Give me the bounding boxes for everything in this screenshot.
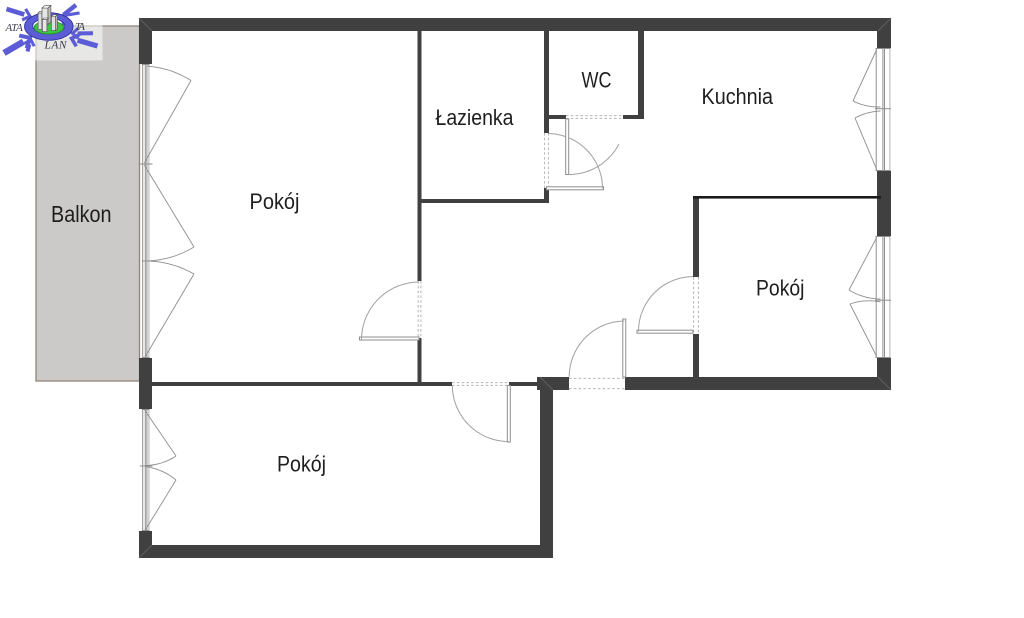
svg-text:LAN: LAN <box>44 39 68 51</box>
svg-text:Kuchnia: Kuchnia <box>702 84 774 109</box>
svg-text:Balkon: Balkon <box>51 201 112 227</box>
svg-text:Łazienka: Łazienka <box>436 105 514 130</box>
svg-text:Pokój: Pokój <box>277 452 326 477</box>
svg-text:ATA: ATA <box>5 22 24 34</box>
svg-text:TA: TA <box>75 21 85 33</box>
svg-text:WC: WC <box>582 68 612 93</box>
svg-text:Pokój: Pokój <box>756 276 805 301</box>
svg-text:Pokój: Pokój <box>250 189 300 214</box>
